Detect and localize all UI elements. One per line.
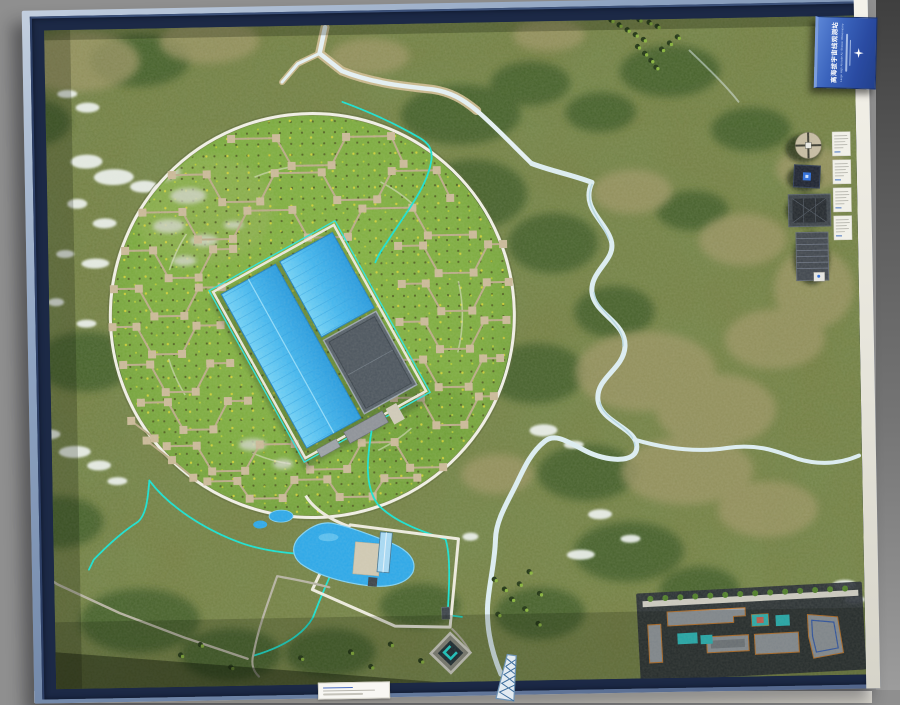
compass-rose-icon [853,48,863,58]
lattice-tower [489,651,530,705]
terrain-map [44,16,866,690]
sign-title-cn: 高海拔宇宙线观测站 [829,22,840,83]
scale-model: 高海拔宇宙线观测站 Large High Altitude Air Shower… [22,0,881,704]
grain-overlay [44,16,866,690]
label-card-text-line [323,689,375,692]
base-label-card [318,681,390,699]
photo-of-site-scale-model: 高海拔宇宙线观测站 Large High Altitude Air Shower… [0,0,900,703]
label-card-text-line [323,693,363,695]
sign-small-text-line [845,34,847,72]
sign-title-en: Large High Altitude Air Shower Observato… [840,23,844,81]
sign-small-text-line [849,40,851,66]
label-card-text-line [323,687,353,689]
table-surface-right [876,0,900,703]
sign-plaque: 高海拔宇宙线观测站 Large High Altitude Air Shower… [814,16,878,90]
